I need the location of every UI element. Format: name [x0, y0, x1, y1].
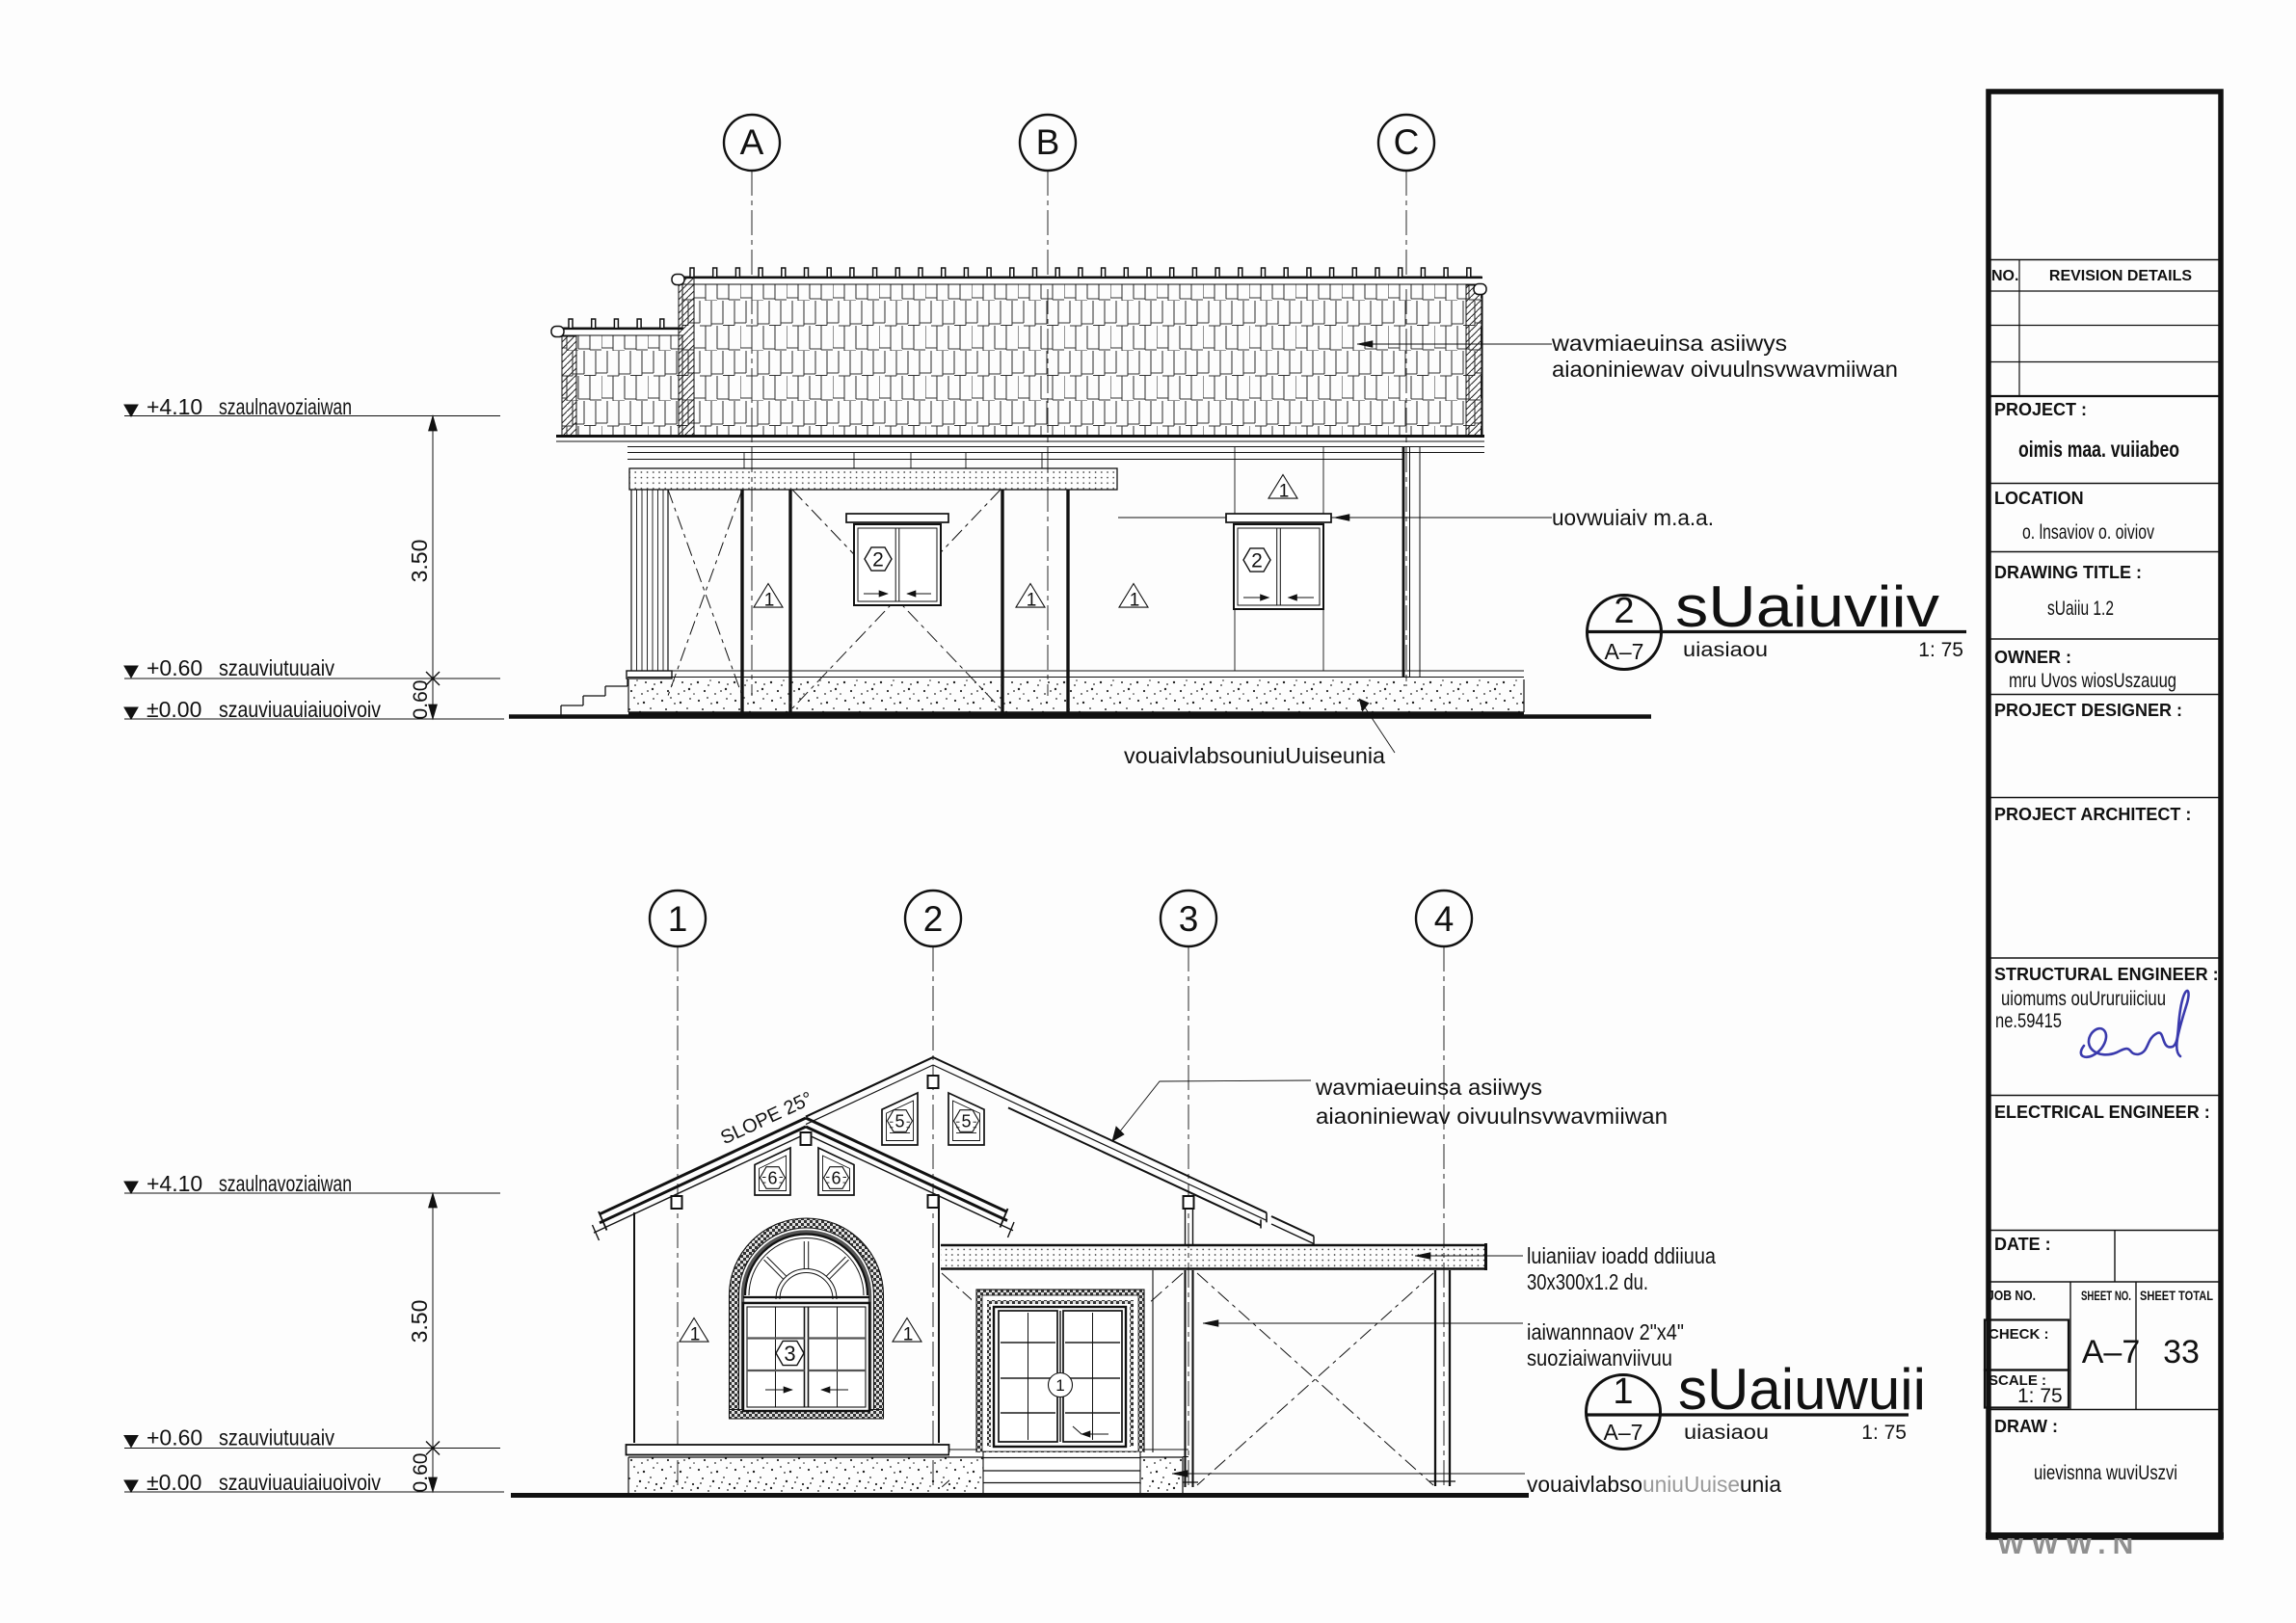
svg-text:vouaivlabsouniuUuiseunia: vouaivlabsouniuUuiseunia — [1527, 1472, 1781, 1497]
svg-text:vouaivlabsouniuUuiseunia: vouaivlabsouniuUuiseunia — [1124, 743, 1385, 768]
svg-text:PROJECT DESIGNER :: PROJECT DESIGNER : — [1994, 701, 2182, 720]
svg-text:3: 3 — [1179, 899, 1199, 939]
svg-text:mru Uvos wiosUszauug: mru Uvos wiosUszauug — [2009, 670, 2176, 692]
svg-text:A: A — [740, 122, 764, 162]
svg-text:LOCATION: LOCATION — [1994, 489, 2084, 508]
svg-text:1: 1 — [668, 899, 688, 939]
svg-text:2: 2 — [1251, 550, 1263, 572]
svg-text:ne.59415: ne.59415 — [1995, 1010, 2062, 1032]
svg-text:A–7: A–7 — [1605, 639, 1644, 664]
svg-text:+4.10: +4.10 — [147, 1171, 202, 1196]
svg-text:SHEET NO.: SHEET NO. — [2081, 1288, 2131, 1303]
svg-text:+0.60: +0.60 — [147, 1425, 202, 1450]
svg-text:1: 1 — [903, 1324, 914, 1344]
svg-text:2: 2 — [872, 549, 884, 572]
svg-text:aiaoniniewav oivuulnsvwavmiiwa: aiaoniniewav oivuulnsvwavmiiwan — [1552, 357, 1898, 382]
svg-text:ELECTRICAL ENGINEER :: ELECTRICAL ENGINEER : — [1994, 1103, 2210, 1122]
svg-text:A–7: A–7 — [1604, 1420, 1643, 1445]
svg-text:2: 2 — [923, 899, 944, 939]
svg-text:uovwuiaiv m.a.a.: uovwuiaiv m.a.a. — [1552, 505, 1714, 530]
svg-text:A–7: A–7 — [2082, 1334, 2141, 1370]
svg-text:sUaiuviiv: sUaiuviiv — [1675, 574, 1939, 639]
svg-text:DATE :: DATE : — [1994, 1235, 2051, 1254]
svg-text:1: 1 — [764, 590, 775, 610]
svg-text:JOB NO.: JOB NO. — [1988, 1288, 2036, 1304]
svg-text:uiasiaou: uiasiaou — [1684, 1422, 1769, 1444]
svg-text:szauviutuuaiv: szauviutuuaiv — [219, 655, 334, 680]
svg-text:1: 1 — [690, 1324, 701, 1344]
svg-text:szauviuauiaiuoivoiv: szauviuauiaiuoivoiv — [219, 697, 381, 722]
svg-text:sUaiiu 1.2: sUaiiu 1.2 — [2047, 598, 2114, 620]
svg-text:±0.00: ±0.00 — [147, 1470, 201, 1495]
svg-text:6: 6 — [767, 1169, 777, 1188]
svg-text:PROJECT :: PROJECT : — [1994, 400, 2087, 419]
svg-text:PROJECT ARCHITECT :: PROJECT ARCHITECT : — [1994, 805, 2191, 824]
svg-text:+0.60: +0.60 — [147, 655, 202, 680]
svg-text:NO.: NO. — [1991, 268, 2018, 284]
svg-text:2: 2 — [1614, 591, 1634, 631]
svg-text:uievisnna wuviUszvi: uievisnna wuviUszvi — [2034, 1462, 2177, 1484]
svg-text:0.60: 0.60 — [410, 1453, 432, 1493]
svg-text:6: 6 — [831, 1169, 841, 1188]
svg-text:C: C — [1394, 122, 1420, 162]
svg-text:CHECK :: CHECK : — [1989, 1326, 2049, 1343]
svg-text:STRUCTURAL ENGINEER :: STRUCTURAL ENGINEER : — [1994, 965, 2219, 984]
svg-text:1: 1 — [1055, 1376, 1064, 1395]
svg-text:szaulnavoziaiwan: szaulnavoziaiwan — [219, 1171, 352, 1196]
svg-text:REVISION DETAILS: REVISION DETAILS — [2049, 268, 2192, 284]
svg-text:30x300x1.2 du.: 30x300x1.2 du. — [1527, 1269, 1648, 1294]
svg-text:szauviuauiaiuoivoiv: szauviuauiaiuoivoiv — [219, 1470, 381, 1495]
svg-text:uiomums ouUruruiiciuu: uiomums ouUruruiiciuu — [2001, 988, 2166, 1010]
svg-text:33: 33 — [2163, 1334, 2200, 1370]
svg-text:iaiwannnaov 2"x4": iaiwannnaov 2"x4" — [1527, 1319, 1684, 1344]
svg-text:3.50: 3.50 — [407, 540, 432, 583]
svg-text:1: 75: 1: 75 — [2017, 1385, 2063, 1407]
svg-text:luianiiav ioadd ddiiuua: luianiiav ioadd ddiiuua — [1527, 1243, 1716, 1268]
svg-text:5: 5 — [894, 1112, 904, 1131]
svg-text:1: 75: 1: 75 — [1918, 639, 1963, 661]
svg-text:OWNER :: OWNER : — [1994, 648, 2071, 667]
svg-text:0.60: 0.60 — [410, 680, 432, 720]
svg-text:1: 1 — [1027, 590, 1037, 610]
svg-text:wavmiaeuinsa asiiwys: wavmiaeuinsa asiiwys — [1315, 1075, 1542, 1100]
svg-text:oimis maa. vuiiabeo: oimis maa. vuiiabeo — [2018, 437, 2179, 462]
svg-text:uiasiaou: uiasiaou — [1683, 639, 1768, 661]
svg-text:B: B — [1036, 122, 1060, 162]
svg-text:wavmiaeuinsa asiiwys: wavmiaeuinsa asiiwys — [1551, 331, 1787, 356]
svg-text:3: 3 — [784, 1342, 795, 1366]
svg-text:1: 1 — [1613, 1371, 1633, 1412]
svg-text:±0.00: ±0.00 — [147, 697, 201, 722]
svg-text:szauviutuuaiv: szauviutuuaiv — [219, 1425, 334, 1450]
svg-text:1: 1 — [1130, 590, 1140, 610]
svg-text:DRAWING TITLE :: DRAWING TITLE : — [1994, 563, 2142, 582]
svg-text:4: 4 — [1434, 899, 1455, 939]
svg-text:sUaiuwuii: sUaiuwuii — [1678, 1357, 1926, 1422]
svg-text:aiaoniniewav oivuulnsvwavmiiwa: aiaoniniewav oivuulnsvwavmiiwan — [1316, 1104, 1668, 1129]
svg-text:suoziaiwanviivuu: suoziaiwanviivuu — [1527, 1345, 1672, 1370]
svg-text:3.50: 3.50 — [407, 1300, 432, 1344]
svg-text:5: 5 — [961, 1112, 971, 1131]
svg-text:o. lnsaviov o. oiviov: o. lnsaviov o. oiviov — [2022, 521, 2154, 544]
svg-text:SHEET TOTAL: SHEET TOTAL — [2140, 1289, 2213, 1303]
svg-text:1: 1 — [1279, 481, 1290, 501]
svg-text:DRAW :: DRAW : — [1994, 1417, 2058, 1436]
svg-text:1: 75: 1: 75 — [1861, 1422, 1907, 1444]
